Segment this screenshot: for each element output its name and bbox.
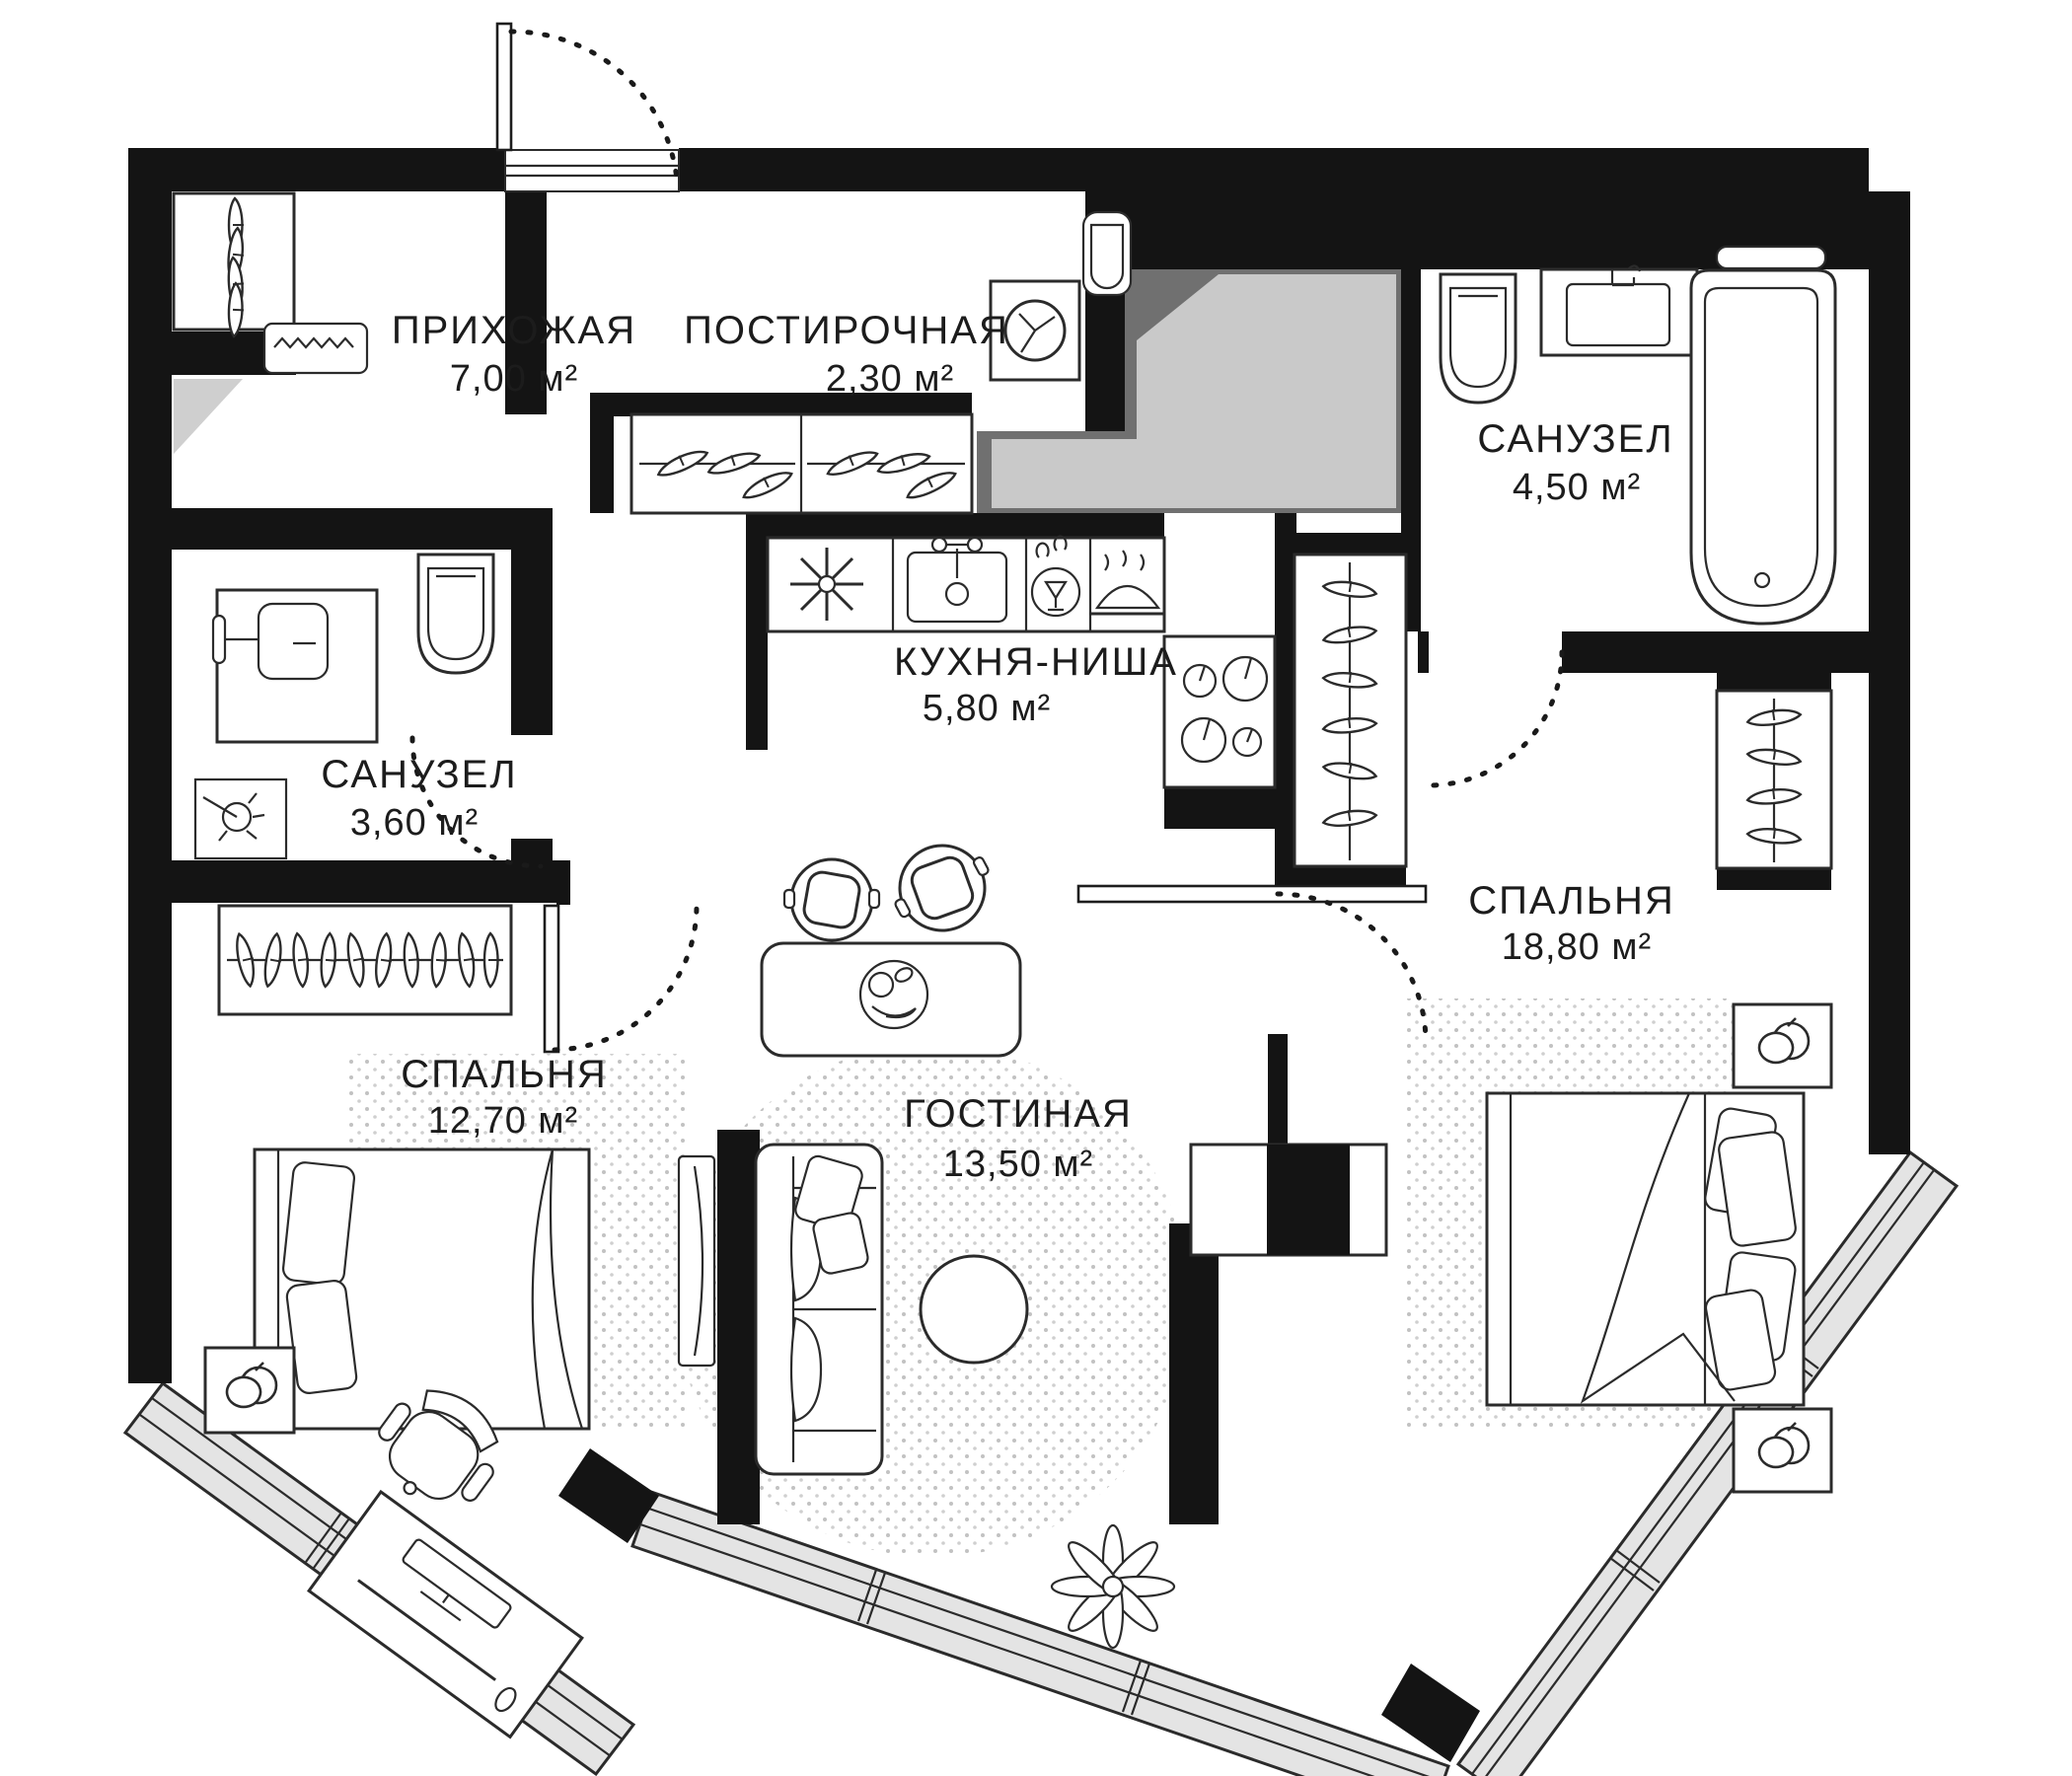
stove-burners-icon [1164,636,1275,787]
fruit-bowl-icon [860,961,927,1028]
bedroom-left-wardrobe [219,906,511,1014]
vanity-sink-icon [213,590,377,742]
sofa-icon [756,1145,882,1474]
bedroom-right-wardrobe-right [1717,691,1831,868]
toilet-icon [418,555,493,673]
room-area: 3,60 м² [350,802,479,844]
floor-plan-drawing: ПРИХОЖАЯ 7,00 м² ПОСТИРОЧНАЯ 2,30 м² САН… [0,0,2072,1776]
room-name: САНУЗЕЛ [321,753,517,796]
shower-head-icon [195,779,286,858]
room-name: ГОСТИНАЯ [904,1092,1133,1136]
tv-console-icon [1191,1145,1386,1255]
room-area: 4,50 м² [1513,467,1641,508]
room-area: 18,80 м² [1502,926,1652,968]
toilet-icon [1441,274,1516,403]
bedroom-right-door-leaf [1078,886,1426,902]
bedroom-left-door-leaf [545,906,558,1052]
bed-icon [255,1149,589,1429]
room-name: САНУЗЕЛ [1477,417,1673,461]
room-name: СПАЛЬНЯ [401,1053,607,1096]
plant-icon [1052,1525,1174,1648]
room-area: 2,30 м² [826,358,954,400]
vanity-sink-icon [1541,265,1697,355]
room-name: ПРИХОЖАЯ [392,309,636,352]
laundry-closet [631,414,972,513]
dining-table-icon [762,943,1020,1056]
room-name: КУХНЯ-НИША [894,640,1178,684]
nightstand-icon [1734,1004,1831,1087]
fridge-snowflake-icon [790,548,863,621]
bed-icon [1487,1093,1804,1405]
room-area: 5,80 м² [923,688,1051,729]
nightstand-icon [1734,1409,1831,1492]
floor-plan: ПРИХОЖАЯ 7,00 м² ПОСТИРОЧНАЯ 2,30 м² САН… [0,0,2072,1776]
bathtub-icon [1691,247,1835,624]
nightstand-icon [205,1348,294,1433]
wall-sink-icon [1083,212,1131,295]
room-area: 7,00 м² [450,358,578,400]
room-name: СПАЛЬНЯ [1468,879,1674,923]
doormat-icon [264,324,367,373]
bedroom-right-wardrobe-left [1295,555,1406,866]
room-name: ПОСТИРОЧНАЯ [684,309,1009,352]
entrance-door-leaf [497,24,511,150]
tv-icon [679,1156,714,1366]
room-area: 12,70 м² [428,1100,578,1142]
hallway-closet [174,193,294,336]
coffee-table-icon [921,1256,1027,1363]
kitchen-counter [768,537,1164,631]
room-area: 13,50 м² [943,1144,1093,1185]
